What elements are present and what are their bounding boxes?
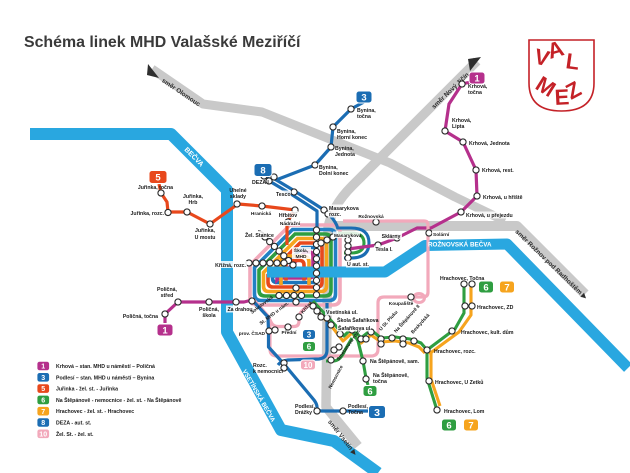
svg-text:Žel. Stanice: Žel. Stanice [245, 231, 274, 239]
svg-text:8: 8 [41, 420, 45, 427]
svg-text:10: 10 [39, 431, 47, 438]
svg-text:6: 6 [367, 386, 372, 397]
svg-text:Za drahou: Za drahou [227, 307, 252, 313]
svg-text:Na Štěpánově, sam.: Na Štěpánově, sam. [370, 357, 420, 365]
svg-text:Juřinka,: Juřinka, [195, 228, 215, 234]
svg-text:Dolní konec: Dolní konec [319, 171, 349, 177]
svg-text:Šafaříkova ul.: Šafaříkova ul. [338, 324, 372, 332]
svg-text:Masarykova: Masarykova [334, 233, 362, 239]
svg-text:Tesla I.: Tesla I. [375, 247, 393, 253]
svg-text:Točna: Točna [348, 410, 363, 416]
svg-text:Nádražní: Nádražní [280, 221, 301, 227]
svg-text:točna: točna [468, 90, 482, 96]
svg-text:Na Štěpánově - nemocnice - žel: Na Štěpánově - nemocnice - žel. st. - Na… [56, 396, 182, 404]
svg-text:DEZA - aut. st.: DEZA - aut. st. [56, 421, 92, 427]
svg-text:Drážky: Drážky [295, 410, 312, 416]
svg-text:Schéma linek MHD Valašské Mezi: Schéma linek MHD Valašské Meziříčí [24, 34, 301, 51]
svg-text:Lipta: Lipta [452, 124, 465, 130]
svg-text:3: 3 [374, 407, 380, 419]
svg-text:Juřinka, točna: Juřinka, točna [138, 185, 173, 191]
svg-text:Hranická: Hranická [251, 211, 272, 217]
svg-text:Tesco: Tesco [276, 192, 291, 198]
svg-text:Hrachovec - žel. st. - Hrachov: Hrachovec - žel. st. - Hrachovec [56, 409, 134, 415]
svg-text:Na Štěpánově,: Na Štěpánově, [373, 371, 409, 379]
svg-text:točna: točna [357, 114, 371, 120]
svg-text:Krhová, rest.: Krhová, rest. [482, 168, 514, 174]
svg-text:Hrachovec, kult. dům: Hrachovec, kult. dům [461, 329, 514, 336]
svg-text:k nemocnici: k nemocnici [253, 369, 284, 375]
svg-text:3: 3 [41, 375, 45, 382]
svg-text:Vsetínská ul.: Vsetínská ul. [326, 310, 358, 316]
svg-text:Juřinka, rozc.: Juřinka, rozc. [131, 211, 165, 217]
svg-text:5: 5 [41, 386, 45, 393]
svg-text:5: 5 [155, 172, 161, 183]
svg-text:Hrb: Hrb [189, 200, 198, 206]
svg-text:Hrachovec, rozc.: Hrachovec, rozc. [434, 349, 476, 355]
svg-text:točna: točna [373, 379, 387, 385]
svg-text:Krhová, Jednota: Krhová, Jednota [469, 141, 510, 147]
svg-text:Žel. St. - žel. st.: Žel. St. - žel. st. [56, 430, 94, 438]
svg-text:Krhová – stan. MHD u náměstí –: Krhová – stan. MHD u náměstí – Poličná [56, 364, 155, 370]
svg-text:Hrachovec, Lom: Hrachovec, Lom [444, 409, 485, 415]
svg-text:7: 7 [468, 420, 473, 431]
svg-text:sklady: sklady [230, 194, 246, 200]
svg-text:MHD: MHD [296, 254, 307, 260]
svg-text:Juřinka - žel. st. - Juřinka: Juřinka - žel. st. - Juřinka [56, 387, 118, 393]
svg-text:Solární: Solární [433, 232, 450, 238]
svg-text:1: 1 [41, 364, 45, 371]
svg-text:Hrachovec, U Zetků: Hrachovec, U Zetků [435, 379, 483, 386]
svg-text:1: 1 [162, 325, 168, 336]
svg-text:Jednota: Jednota [335, 152, 355, 158]
svg-text:6: 6 [483, 282, 488, 293]
svg-text:10: 10 [304, 361, 313, 370]
svg-text:Škola Šafaříkova: Škola Šafaříkova [337, 316, 379, 324]
svg-text:prov. ČSAD: prov. ČSAD [239, 330, 266, 337]
svg-text:Poličná, točna: Poličná, točna [123, 314, 158, 320]
svg-text:7: 7 [41, 409, 45, 416]
svg-text:Horní konec: Horní konec [337, 135, 367, 141]
svg-text:7: 7 [504, 282, 509, 293]
svg-text:Hrachovec, Točna: Hrachovec, Točna [440, 276, 484, 282]
svg-text:Krhová, u přejezdu: Krhová, u přejezdu [466, 213, 513, 219]
svg-text:Křižná, rozc.: Křižná, rozc. [215, 263, 246, 269]
svg-text:škola: škola [202, 313, 215, 319]
svg-text:ROŽNOVSKÁ BEČVA: ROŽNOVSKÁ BEČVA [428, 240, 492, 249]
svg-text:U mostu: U mostu [195, 235, 216, 241]
svg-text:Rožnovská: Rožnovská [358, 214, 384, 220]
svg-text:Krhová, u hřiště: Krhová, u hřiště [483, 195, 523, 201]
svg-text:Přední: Přední [282, 330, 298, 336]
svg-text:1: 1 [474, 73, 480, 84]
svg-text:Sklárny: Sklárny [382, 234, 401, 240]
svg-text:Podlesí – stan. MHD u náměstí: Podlesí – stan. MHD u náměstí – Bynina [56, 375, 154, 381]
svg-text:DEZA I: DEZA I [252, 180, 269, 186]
svg-text:Koupaliště: Koupaliště [389, 301, 414, 307]
svg-text:Hrachovec, ZD: Hrachovec, ZD [477, 305, 514, 311]
svg-text:rozc.: rozc. [329, 212, 342, 218]
svg-text:6: 6 [446, 420, 451, 431]
svg-text:U aut. st.: U aut. st. [347, 262, 369, 268]
svg-text:Hřbitov: Hřbitov [279, 213, 297, 219]
svg-text:6: 6 [41, 398, 45, 405]
svg-text:8: 8 [260, 165, 265, 176]
svg-text:3: 3 [361, 92, 366, 103]
svg-text:střed: střed [161, 293, 174, 299]
svg-text:6: 6 [307, 342, 312, 351]
svg-text:3: 3 [307, 330, 312, 339]
